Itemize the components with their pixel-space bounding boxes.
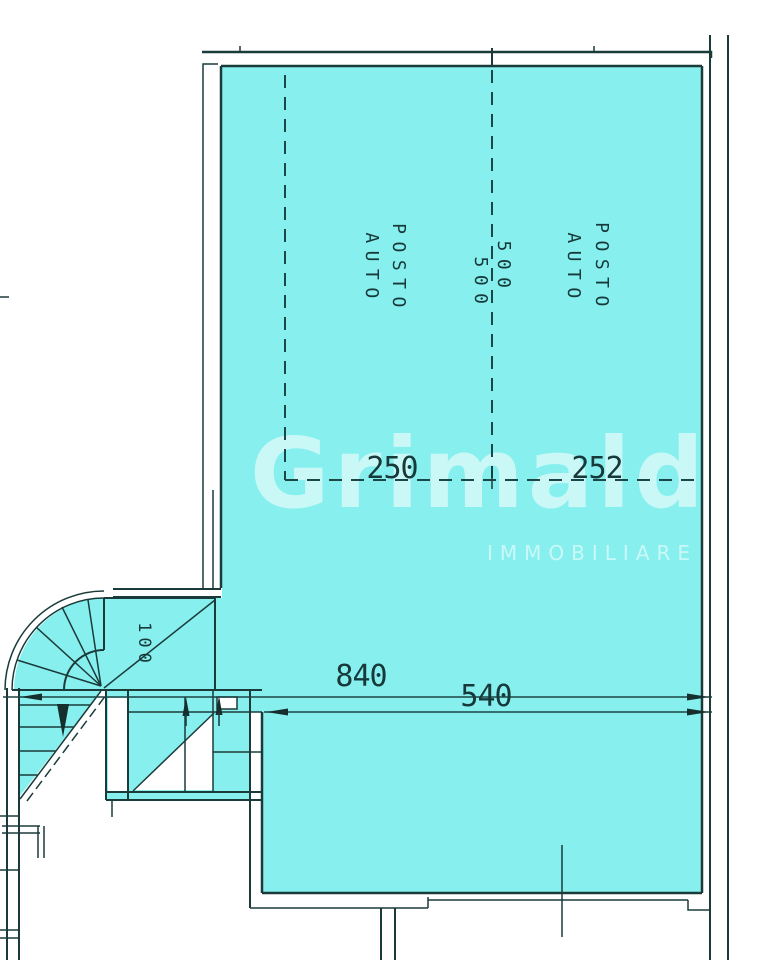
dim-540-label: 540 — [460, 679, 511, 714]
top-wall-line — [202, 52, 711, 58]
floor-plan-page: Grimaldi IMMOBILIARE — [0, 0, 757, 960]
posto-label-1: POSTO — [388, 223, 409, 315]
dim-252-label: 252 — [571, 451, 622, 486]
dim-250-label: 250 — [366, 451, 417, 486]
auto-label-1: AUTO — [361, 232, 382, 305]
stair-strip-fill — [106, 598, 222, 690]
posto-label-2: POSTO — [591, 222, 612, 314]
stair-eye-gap — [108, 698, 128, 792]
dim-500-right-label: 500 — [493, 240, 514, 295]
auto-label-2: AUTO — [563, 232, 584, 305]
dim-100-label: 100 — [134, 622, 154, 668]
watermark-brand: Grimaldi — [250, 417, 745, 530]
dim-840-label: 840 — [335, 659, 386, 694]
stair-quarter-landing-fill — [14, 598, 106, 690]
left-outer-wall — [203, 64, 218, 588]
floor-plan-canvas: Grimaldi IMMOBILIARE — [0, 0, 757, 960]
dim-500-left-label: 500 — [470, 256, 491, 311]
lower-wall-step-right — [688, 900, 710, 910]
watermark-subtitle: IMMOBILIARE — [487, 541, 697, 565]
